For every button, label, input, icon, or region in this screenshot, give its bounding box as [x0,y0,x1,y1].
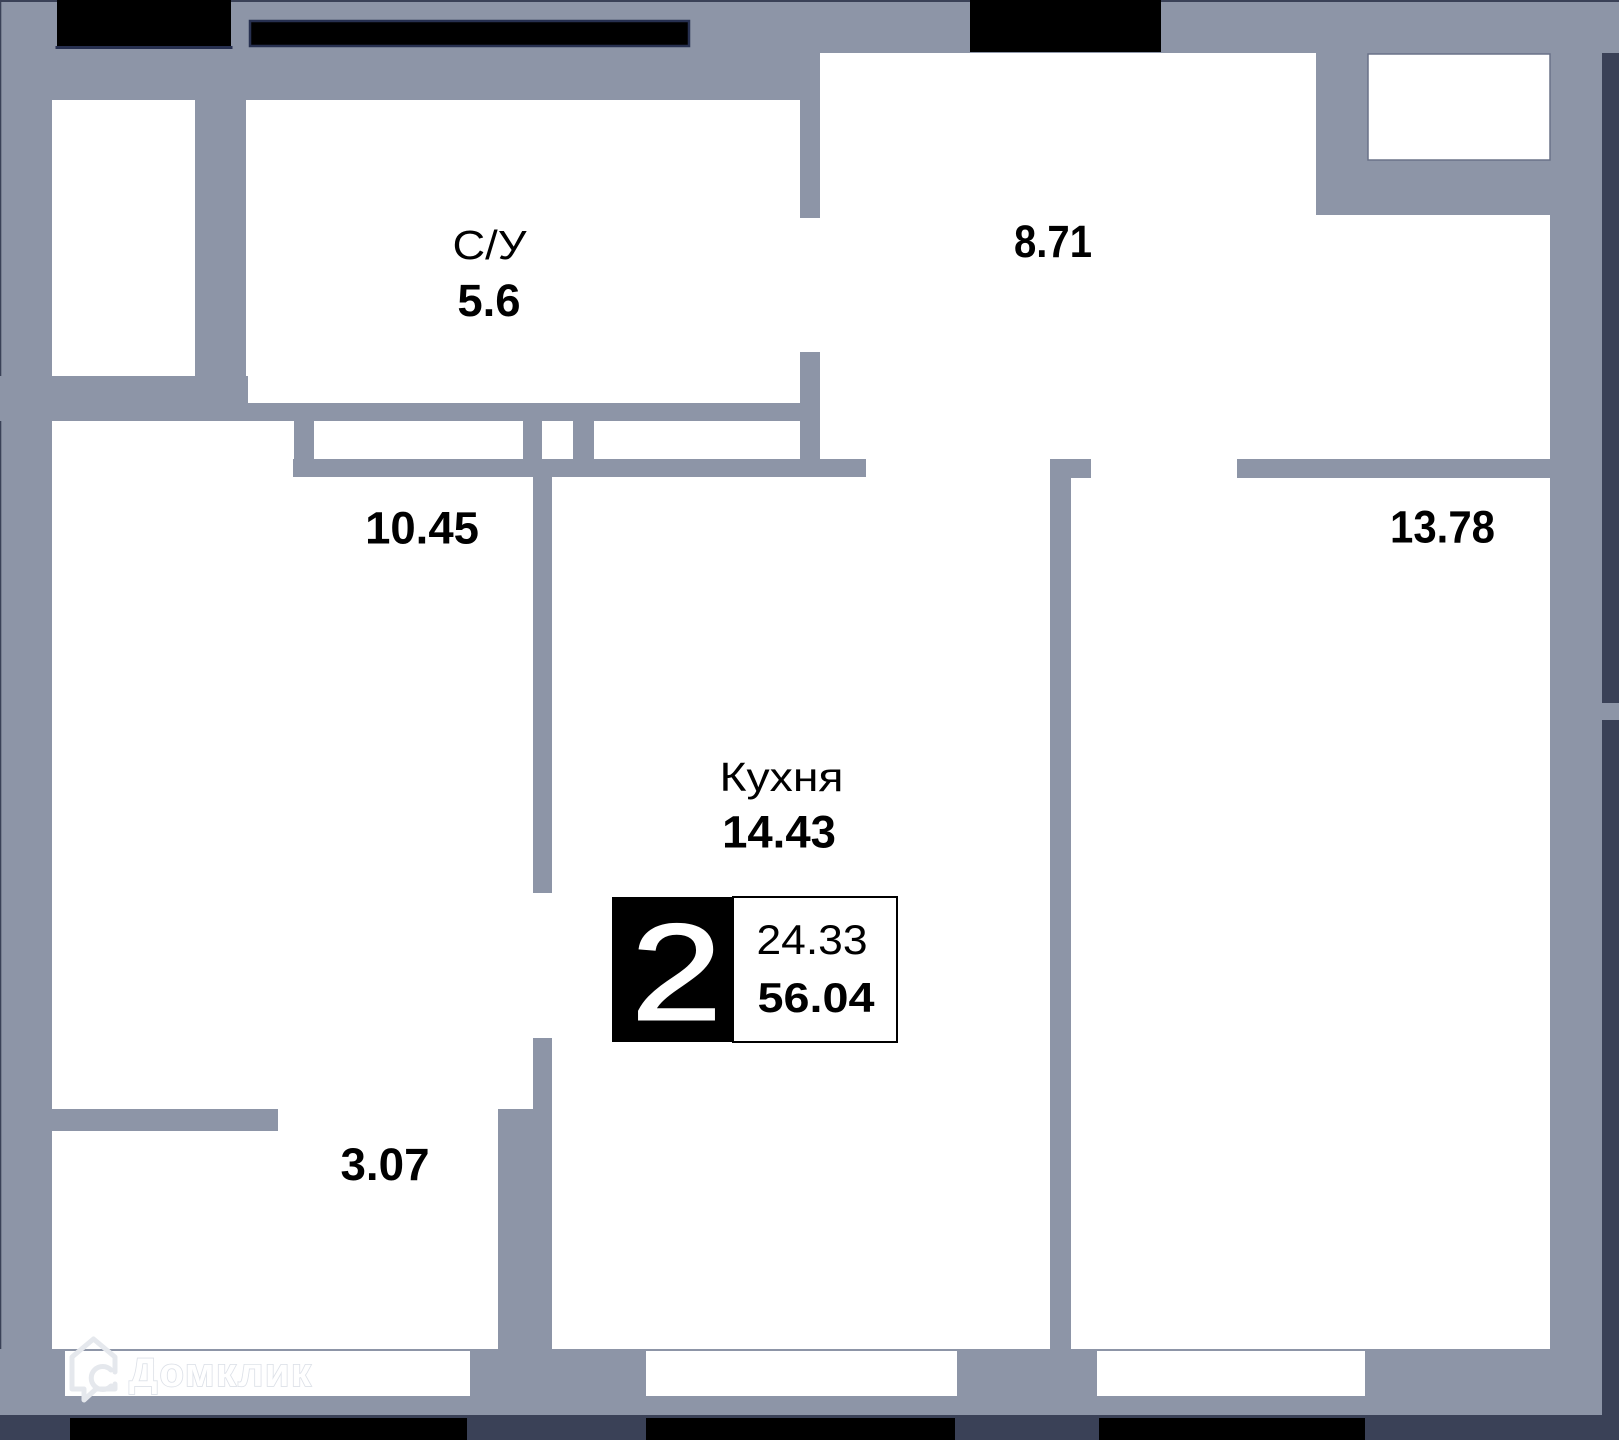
svg-text:Кухня: Кухня [720,754,844,800]
svg-text:13.78: 13.78 [1390,502,1495,553]
svg-text:14.43: 14.43 [722,807,836,858]
svg-text:8.71: 8.71 [1014,216,1092,267]
svg-text:2: 2 [631,897,722,1050]
svg-text:5.6: 5.6 [457,275,520,326]
svg-text:10.45: 10.45 [365,503,479,554]
svg-text:С/У: С/У [453,222,528,268]
svg-text:3.07: 3.07 [341,1139,430,1190]
svg-text:24.33: 24.33 [757,916,868,963]
svg-text:Домклик: Домклик [129,1351,313,1395]
svg-text:56.04: 56.04 [758,974,875,1021]
